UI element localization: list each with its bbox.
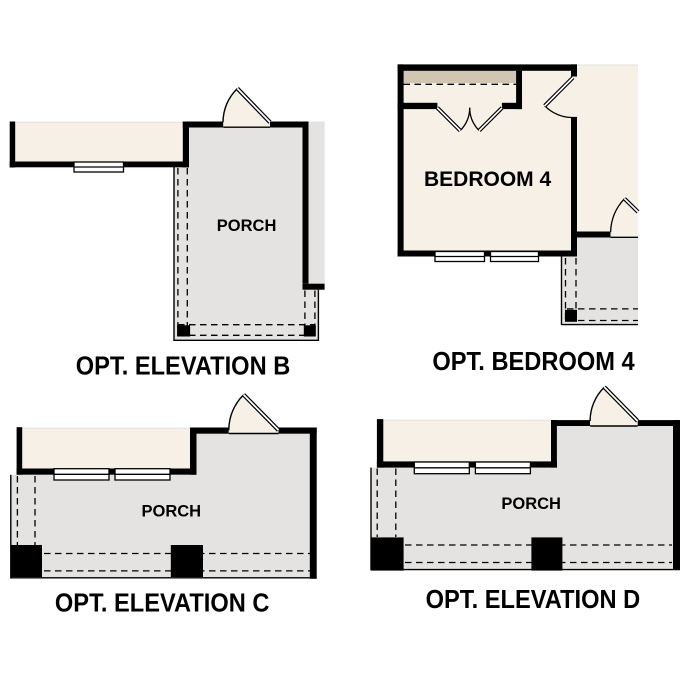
- svg-text:BEDROOM 4: BEDROOM 4: [424, 168, 552, 191]
- svg-text:OPT. ELEVATION D: OPT. ELEVATION D: [426, 586, 641, 614]
- svg-text:PORCH: PORCH: [217, 217, 277, 235]
- svg-text:OPT. BEDROOM 4: OPT. BEDROOM 4: [432, 348, 635, 376]
- svg-text:OPT. ELEVATION B: OPT. ELEVATION B: [76, 352, 291, 380]
- svg-text:OPT. ELEVATION C: OPT. ELEVATION C: [55, 589, 270, 617]
- svg-text:PORCH: PORCH: [142, 503, 202, 521]
- svg-text:PORCH: PORCH: [501, 495, 561, 513]
